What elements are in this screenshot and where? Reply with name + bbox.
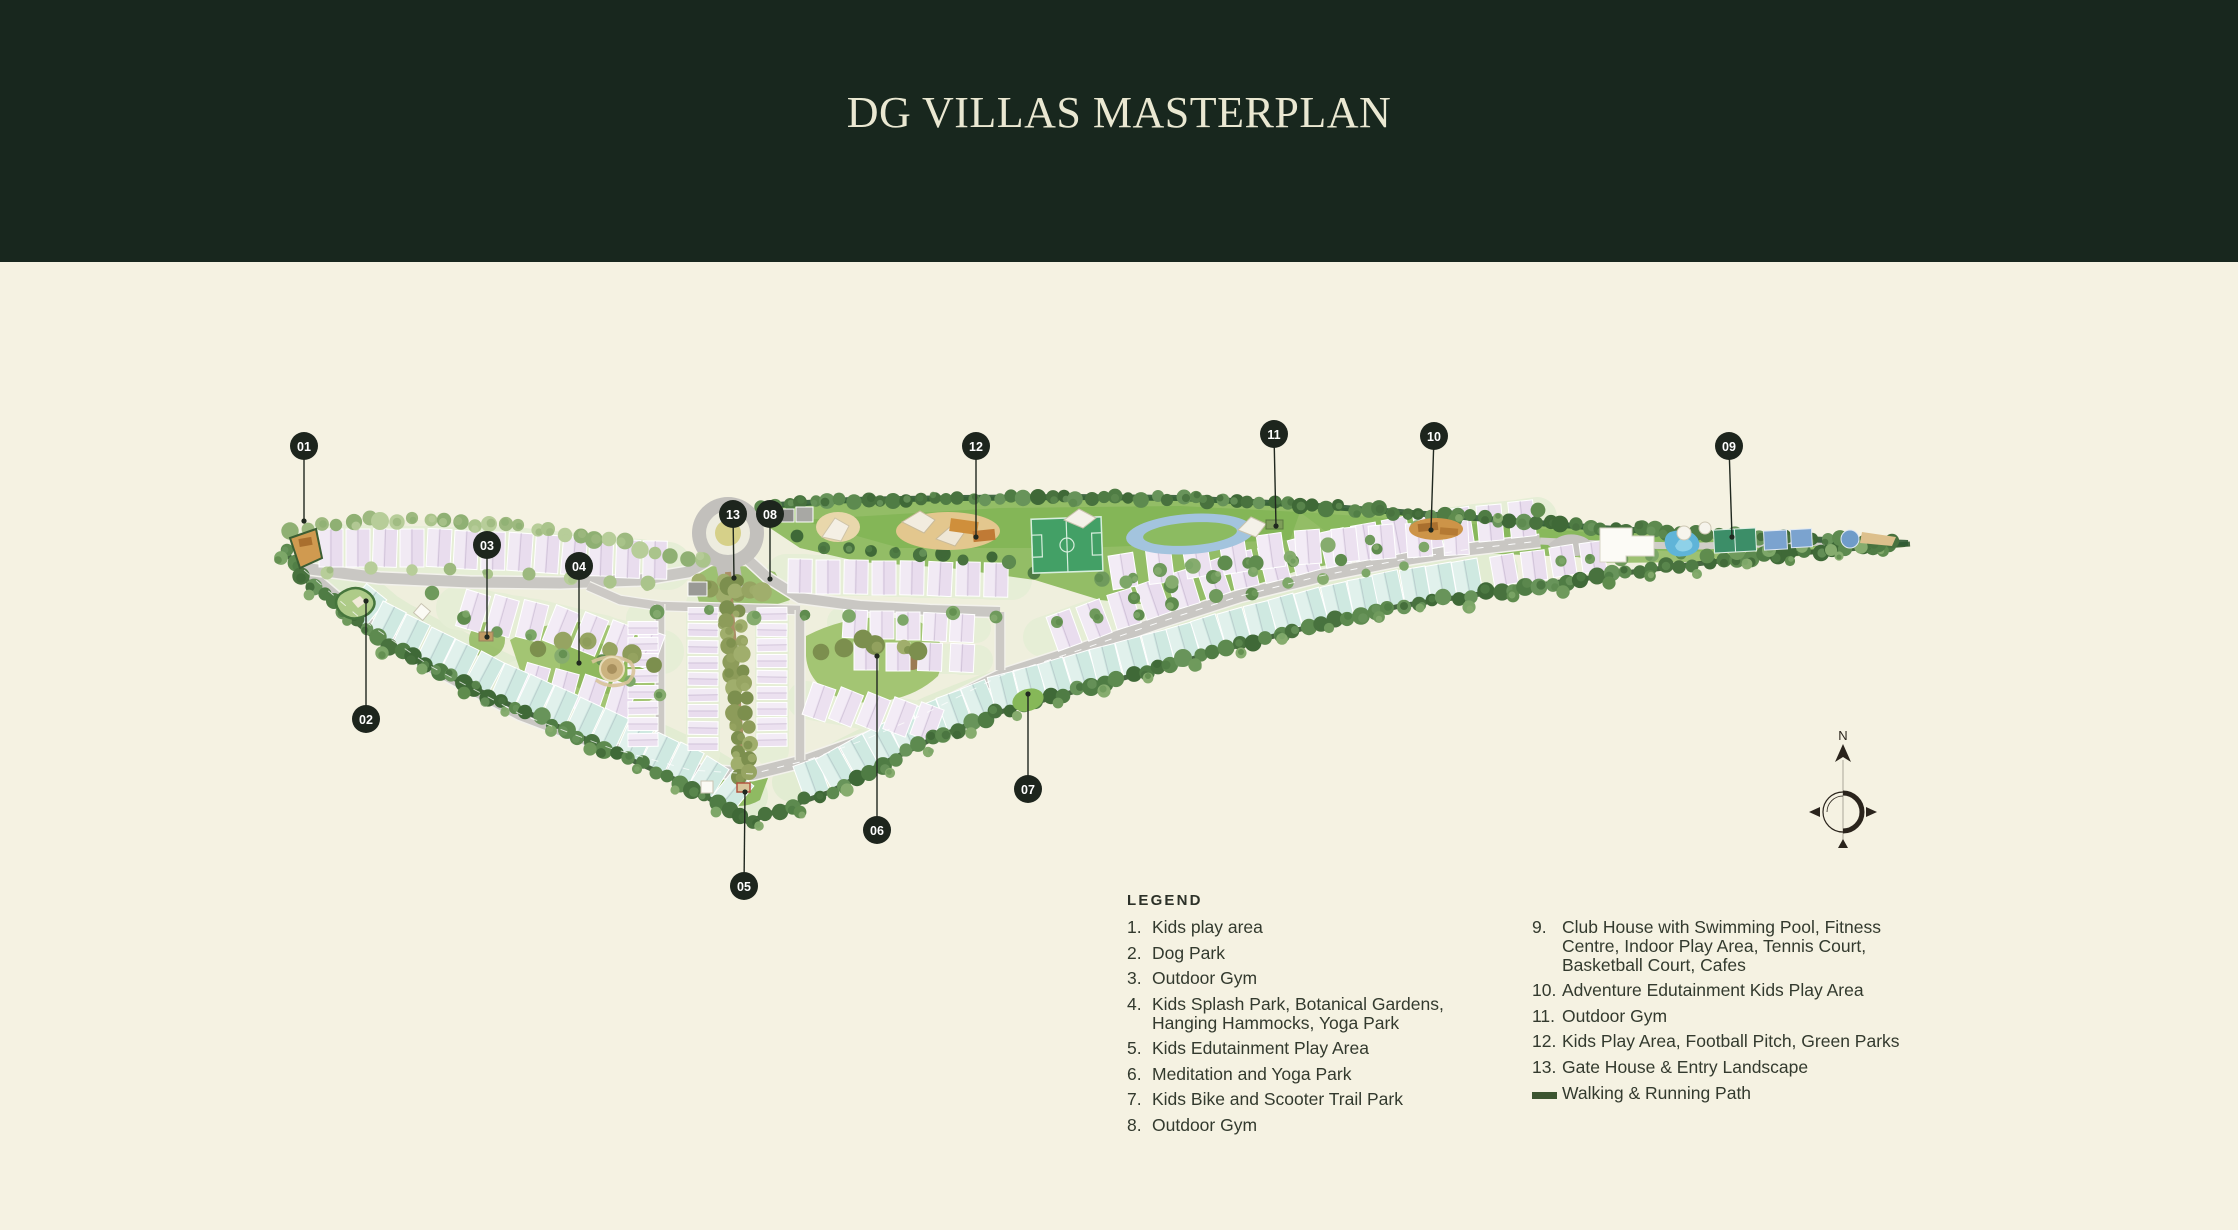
svg-text:06: 06 xyxy=(870,824,884,838)
svg-text:N: N xyxy=(1838,728,1847,743)
svg-text:03: 03 xyxy=(480,539,494,553)
svg-text:08: 08 xyxy=(763,508,777,522)
svg-text:13: 13 xyxy=(726,508,740,522)
svg-text:12: 12 xyxy=(969,440,983,454)
svg-text:09: 09 xyxy=(1722,440,1736,454)
svg-text:07: 07 xyxy=(1021,783,1035,797)
svg-text:05: 05 xyxy=(737,880,751,894)
svg-text:01: 01 xyxy=(297,440,311,454)
svg-text:02: 02 xyxy=(359,713,373,727)
svg-text:10: 10 xyxy=(1427,430,1441,444)
svg-text:11: 11 xyxy=(1267,428,1280,442)
svg-text:04: 04 xyxy=(572,560,586,574)
